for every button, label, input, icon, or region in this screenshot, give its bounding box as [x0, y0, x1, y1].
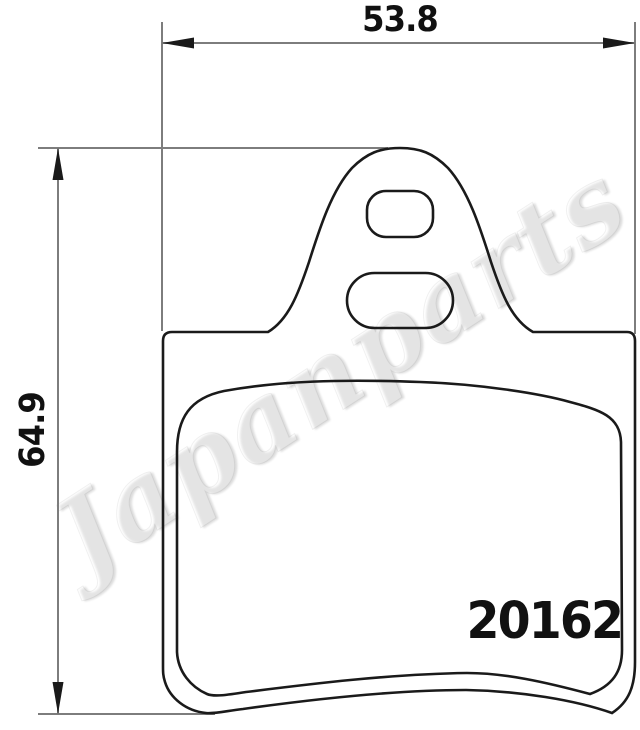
height-arrow-top-icon: [53, 148, 64, 180]
part-number: 20162: [466, 592, 611, 651]
height-arrow-bottom-icon: [53, 682, 64, 714]
width-dimension: [162, 22, 635, 334]
lower-mounting-hole: [347, 273, 453, 328]
upper-mounting-hole: [367, 191, 433, 237]
drawing-page: Japanparts 53.8 64.9: [0, 0, 640, 730]
width-arrow-left-icon: [162, 38, 194, 49]
height-dimension: [38, 148, 388, 714]
width-arrow-right-icon: [603, 38, 635, 49]
height-dimension-label: 64.9: [13, 392, 53, 468]
width-dimension-label: 53.8: [361, 0, 438, 40]
